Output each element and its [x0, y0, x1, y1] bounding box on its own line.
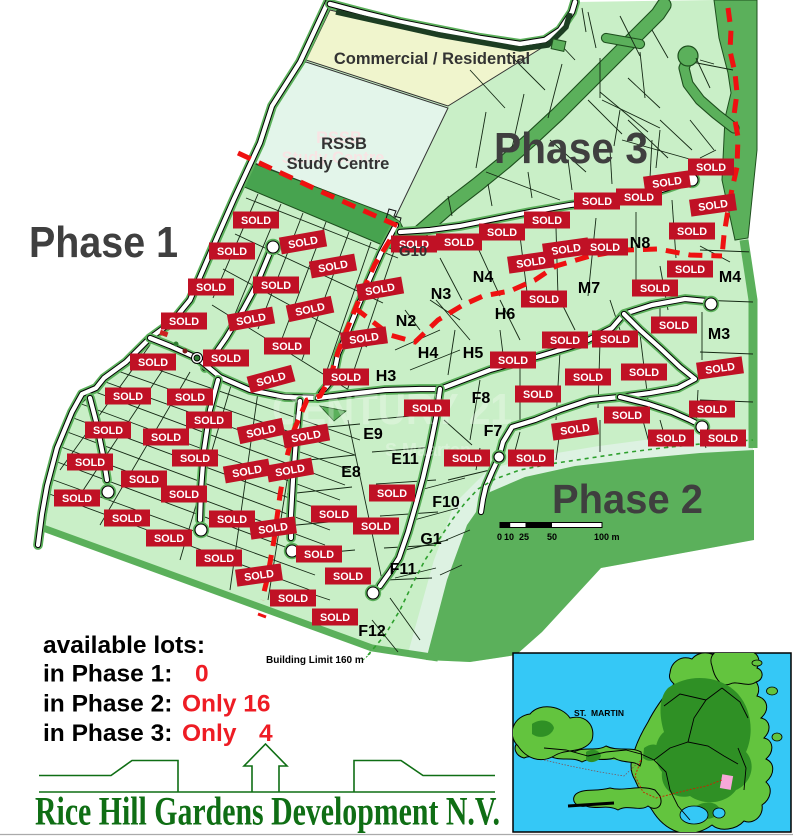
svg-text:SOLD: SOLD — [412, 403, 442, 415]
svg-text:SOLD: SOLD — [75, 457, 105, 469]
svg-text:H3: H3 — [376, 368, 397, 385]
svg-text:SOLD: SOLD — [211, 353, 241, 365]
svg-text:N3: N3 — [431, 286, 452, 303]
svg-text:Only: Only — [182, 720, 237, 747]
svg-text:SOLD: SOLD — [590, 242, 620, 254]
svg-text:SOLD: SOLD — [659, 320, 689, 332]
svg-text:Phase 1: Phase 1 — [29, 219, 178, 267]
svg-text:H6: H6 — [495, 306, 516, 323]
svg-text:F11: F11 — [390, 561, 417, 578]
svg-text:available lots:: available lots: — [43, 632, 205, 659]
svg-text:in Phase 3:: in Phase 3: — [43, 720, 172, 747]
svg-text:Only 16: Only 16 — [182, 691, 271, 718]
svg-text:M4: M4 — [719, 269, 741, 286]
svg-text:SOLD: SOLD — [333, 571, 363, 583]
svg-text:G1: G1 — [420, 531, 441, 548]
svg-text:SOLD: SOLD — [320, 612, 350, 624]
svg-text:SOLD: SOLD — [169, 489, 199, 501]
svg-text:SOLD: SOLD — [151, 432, 181, 444]
svg-text:N2: N2 — [396, 313, 417, 330]
svg-text:Phase 3: Phase 3 — [494, 125, 648, 173]
svg-text:SOLD: SOLD — [444, 237, 474, 249]
svg-text:SOLD: SOLD — [278, 593, 308, 605]
svg-text:ST. MARTIN: ST. MARTIN — [574, 708, 624, 718]
svg-text:H4: H4 — [418, 345, 439, 362]
svg-text:SOLD: SOLD — [550, 335, 580, 347]
svg-text:SOLD: SOLD — [640, 283, 670, 295]
svg-text:F7: F7 — [484, 423, 503, 440]
svg-text:SOLD: SOLD — [377, 488, 407, 500]
svg-text:N8: N8 — [630, 235, 651, 252]
svg-text:SOLD: SOLD — [697, 404, 727, 416]
svg-text:SOLD: SOLD — [629, 367, 659, 379]
svg-text:Commercial / Residential: Commercial / Residential — [334, 50, 530, 68]
svg-text:50: 50 — [547, 532, 557, 542]
svg-text:SOLD: SOLD — [217, 514, 247, 526]
svg-text:SOLD: SOLD — [498, 355, 528, 367]
svg-text:SOLD: SOLD — [175, 392, 205, 404]
svg-text:in Phase 1:: in Phase 1: — [43, 661, 172, 688]
svg-text:SOLD: SOLD — [169, 316, 199, 328]
svg-text:SOLD: SOLD — [696, 162, 726, 174]
svg-text:SOLD: SOLD — [675, 264, 705, 276]
svg-text:SOLD: SOLD — [656, 433, 686, 445]
svg-text:SOLD: SOLD — [516, 453, 546, 465]
svg-text:in Phase 2:: in Phase 2: — [43, 691, 172, 718]
svg-text:H5: H5 — [463, 345, 484, 362]
svg-text:SOLD: SOLD — [361, 521, 391, 533]
svg-text:SOLD: SOLD — [112, 513, 142, 525]
svg-text:SOLD: SOLD — [272, 341, 302, 353]
svg-text:SOLD: SOLD — [487, 227, 517, 239]
svg-text:SOLD: SOLD — [113, 391, 143, 403]
svg-text:SOLD: SOLD — [600, 334, 630, 346]
svg-text:SOLD: SOLD — [573, 372, 603, 384]
svg-text:SOLD: SOLD — [624, 192, 654, 204]
svg-text:SOLD: SOLD — [452, 453, 482, 465]
svg-text:SOLD: SOLD — [677, 226, 707, 238]
svg-text:10: 10 — [504, 532, 514, 542]
svg-text:F10: F10 — [432, 494, 460, 511]
svg-text:SOLD: SOLD — [129, 474, 159, 486]
svg-text:Study Centre: Study Centre — [287, 155, 390, 173]
svg-text:100 m: 100 m — [594, 532, 620, 542]
svg-text:E8: E8 — [341, 464, 361, 481]
svg-text:SOLD: SOLD — [196, 282, 226, 294]
svg-text:25: 25 — [519, 532, 529, 542]
svg-text:SOLD: SOLD — [154, 533, 184, 545]
svg-text:SOLD: SOLD — [708, 433, 738, 445]
svg-text:SOLD: SOLD — [261, 280, 291, 292]
svg-text:SOLD: SOLD — [194, 415, 224, 427]
svg-text:Rice Hill Gardens Development: Rice Hill Gardens Development N.V. — [35, 789, 500, 834]
svg-text:E11: E11 — [391, 451, 419, 468]
svg-text:SOLD: SOLD — [529, 294, 559, 306]
svg-text:0: 0 — [195, 661, 209, 688]
svg-text:SOLD: SOLD — [138, 357, 168, 369]
svg-text:SOLD: SOLD — [180, 453, 210, 465]
svg-text:SOLD: SOLD — [331, 372, 361, 384]
svg-text:Phase 2: Phase 2 — [552, 476, 703, 522]
svg-text:SOLD: SOLD — [532, 215, 562, 227]
svg-text:SOLD: SOLD — [304, 549, 334, 561]
svg-text:M3: M3 — [708, 326, 730, 343]
svg-text:SOLD: SOLD — [93, 425, 123, 437]
svg-text:M7: M7 — [578, 280, 600, 297]
svg-text:SOLD: SOLD — [204, 553, 234, 565]
svg-text:SOLD: SOLD — [582, 196, 612, 208]
svg-text:SOLD: SOLD — [217, 246, 247, 258]
svg-text:Building Limit 160 m: Building Limit 160 m — [266, 655, 364, 666]
svg-text:F8: F8 — [472, 390, 491, 407]
svg-text:E9: E9 — [363, 426, 383, 443]
svg-text:N4: N4 — [473, 269, 494, 286]
svg-text:0: 0 — [497, 532, 502, 542]
svg-text:SOLD: SOLD — [523, 389, 553, 401]
svg-text:SOLD: SOLD — [62, 493, 92, 505]
svg-text:SOLD: SOLD — [241, 215, 271, 227]
svg-text:SOLD: SOLD — [612, 410, 642, 422]
svg-text:4: 4 — [259, 720, 273, 747]
svg-text:G10: G10 — [399, 243, 427, 260]
svg-text:SOLD: SOLD — [319, 509, 349, 521]
svg-text:RSSB: RSSB — [321, 135, 367, 153]
svg-text:F12: F12 — [358, 623, 386, 640]
